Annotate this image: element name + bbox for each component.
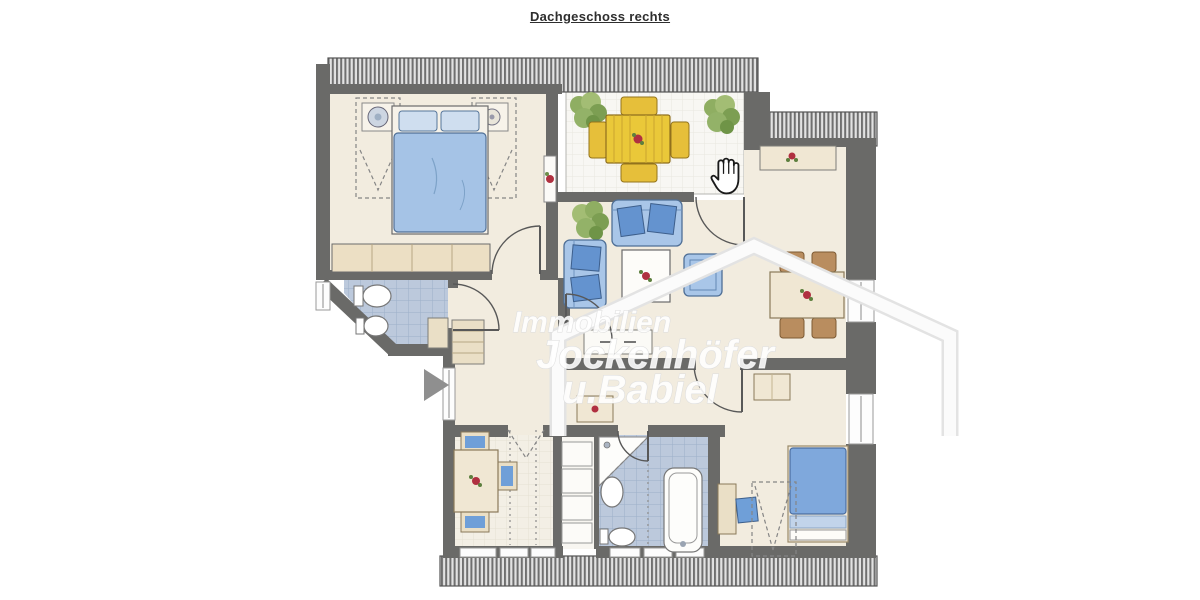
balcony-table: [606, 115, 670, 163]
bathroom-toilet: [600, 528, 635, 546]
hallway: [452, 320, 484, 364]
utility-units: [562, 442, 592, 543]
wall-shelf: [544, 156, 556, 202]
next-arrow-icon: [424, 369, 449, 401]
roof-band-bottom: [440, 556, 877, 586]
wing-sideboard: [760, 146, 836, 170]
sofa-top: [612, 200, 682, 246]
watermark-line-3: u.Babiel: [562, 368, 718, 412]
nightstand-left: [362, 103, 394, 131]
floorplan: Immobilien Jockenhöfer u.Babiel: [0, 0, 1200, 600]
image-viewer: Dachgeschoss rechts: [0, 0, 1200, 600]
desk: [718, 484, 736, 534]
bedroom-sideboard: [332, 244, 490, 272]
bathroom-sink: [601, 477, 623, 507]
wc-toilet: [354, 285, 391, 307]
corridor-cabinet: [754, 374, 790, 400]
single-bed: [788, 446, 848, 542]
wc-window: [316, 282, 330, 310]
wc-bidet: [356, 316, 388, 336]
bathtub: [664, 468, 702, 552]
next-arrow-button[interactable]: [424, 368, 454, 402]
double-bed: [392, 106, 488, 234]
desk-chair: [736, 497, 758, 523]
bedroom-2-window: [849, 394, 873, 444]
hall-dresser: [452, 320, 484, 364]
kitchen-table: [454, 450, 498, 512]
kitchen-windows: [460, 548, 555, 557]
wc-vanity: [428, 318, 448, 348]
